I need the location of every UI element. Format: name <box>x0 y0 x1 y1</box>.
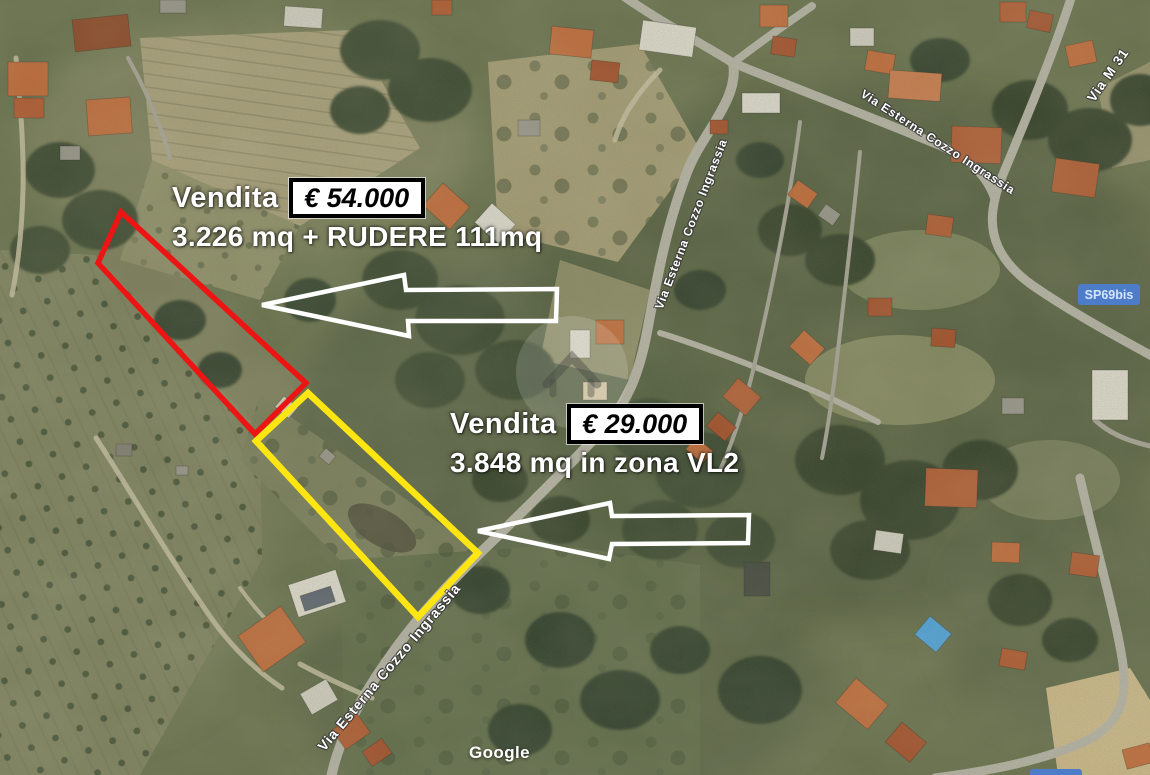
arrow-to-red-parcel <box>262 275 557 336</box>
listing-2-details: 3.848 mq in zona VL2 <box>450 447 739 479</box>
route-badge-sp69bis: SP69bis <box>1078 284 1140 305</box>
route-badge-partial-bottom <box>1030 769 1082 775</box>
parcel-outline-yellow <box>256 393 478 617</box>
listing-2-header: Vendita € 29.000 <box>450 404 703 444</box>
satellite-map: Via Esterna Cozzo Ingrassia Via Esterna … <box>0 0 1150 775</box>
house-logo-icon <box>540 344 604 400</box>
listing-1-details: 3.226 mq + RUDERE 111mq <box>172 221 542 253</box>
listing-1-header: Vendita € 54.000 <box>172 178 425 218</box>
listing-1-price-badge: € 54.000 <box>289 178 425 218</box>
listing-2-price-badge: € 29.000 <box>567 404 703 444</box>
listing-2-label: Vendita <box>450 408 557 441</box>
google-watermark: Google <box>469 743 530 763</box>
listing-1-label: Vendita <box>172 182 279 215</box>
arrow-to-yellow-parcel <box>478 503 749 559</box>
